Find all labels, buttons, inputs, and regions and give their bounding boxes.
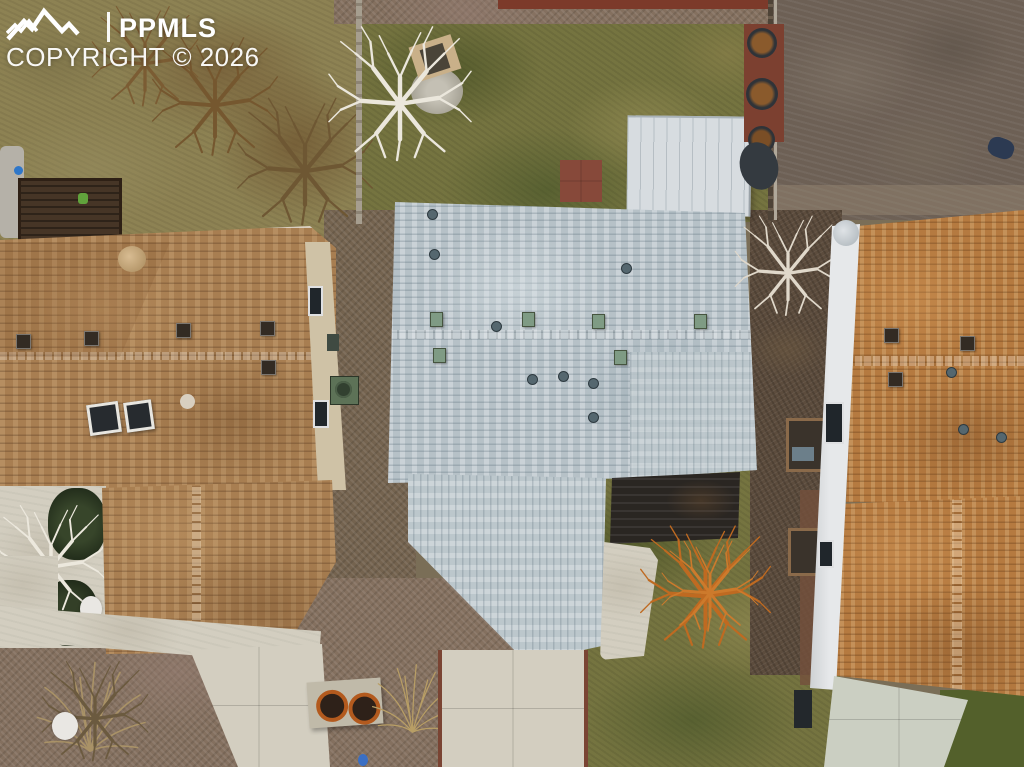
roof-vent [592,314,605,329]
roof-vent [888,372,903,387]
roof-vent [522,312,535,327]
chimney-vent [118,246,146,272]
side-window [824,402,844,444]
roof-vent [16,334,31,349]
utility-box [327,334,339,351]
watermark: PPMLS COPYRIGHT © 2026 [6,6,260,70]
right-house-main-roof [838,208,1024,510]
orange-bush [655,535,765,635]
watermark-divider [107,12,110,42]
left-house-main-roof [0,226,336,500]
pipe-vent [491,321,502,332]
roof-vent [884,328,899,343]
skylight [123,399,155,433]
skylight [86,401,122,436]
roof-vent [614,350,627,365]
right-house-garage-roof [818,494,1024,698]
center-house-main-roof [386,200,760,487]
planter-box [786,418,826,472]
roof-vent [430,312,443,327]
satellite-dish [833,220,859,246]
roof-vent [433,348,446,363]
roof-vent [260,321,275,336]
rain-barrel [747,28,777,58]
roof-vent [694,314,707,329]
pipe-vent [429,249,440,260]
pipe-vent [958,424,969,435]
satellite-dish-small [180,394,195,409]
bare-tree-white [325,18,475,166]
window-well [794,690,812,728]
side-window [818,540,834,568]
rain-barrel [746,78,778,110]
roof-vent [84,331,99,346]
aerial-photo: PPMLS COPYRIGHT © 2026 [0,0,1024,767]
dried-bush [30,655,160,765]
pipe-vent [588,378,599,389]
red-border-strip [498,0,776,9]
white-plastic-bag [52,712,78,740]
side-window [308,286,323,316]
watermark-copyright: COPYRIGHT © 2026 [6,44,260,70]
pipe-vent [558,371,569,382]
watermark-brand: PPMLS [119,15,217,42]
pipe-vent [996,432,1007,443]
pipe-vent [621,263,632,274]
mountain-range-icon [6,6,98,42]
pipe-vent [527,374,538,385]
center-driveway [438,650,588,767]
paver-patio [560,160,602,202]
bare-tree-white [733,192,843,337]
side-window [313,400,329,428]
blue-bucket [14,166,23,175]
dirt-yard-top-right [770,0,1024,220]
ac-unit [330,376,359,405]
pipe-vent [427,209,438,220]
pipe-vent [946,367,957,378]
pipe-vent [588,412,599,423]
roof-vent [960,336,975,351]
blue-object [358,754,368,766]
roof-vent [261,360,276,375]
roof-vent [176,323,191,338]
green-object [78,193,88,204]
